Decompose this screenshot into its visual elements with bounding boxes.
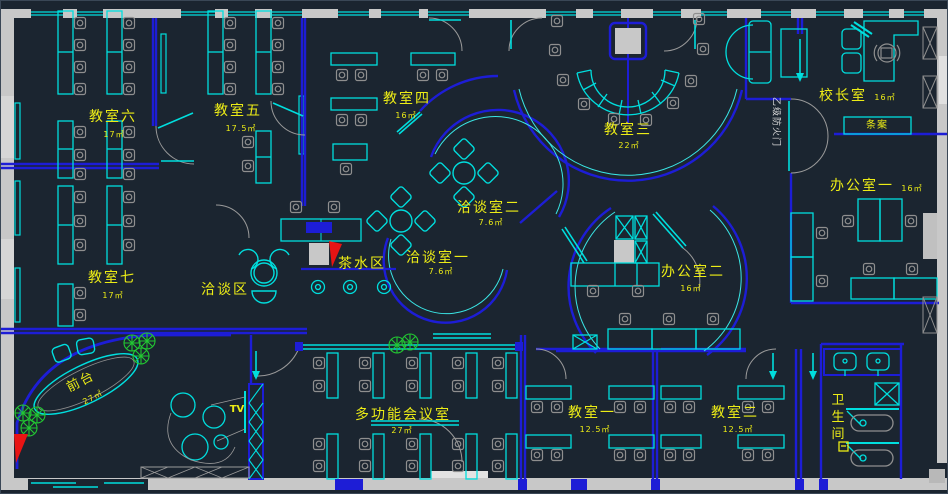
label-classroom2: 教室二 bbox=[711, 406, 759, 420]
label-multi-meeting: 多功能会议室 bbox=[355, 408, 451, 422]
label-meeting1: 洽谈室一 bbox=[406, 251, 470, 265]
floor-plan-drawing bbox=[1, 1, 948, 494]
office2-furniture bbox=[571, 216, 740, 349]
interior-walls-cyan bbox=[389, 89, 742, 351]
classroom1-furniture bbox=[526, 386, 654, 461]
label-meeting2: 洽谈室二 bbox=[457, 201, 521, 215]
label-office2: 办公室二 bbox=[661, 265, 725, 279]
exterior-walls bbox=[1, 9, 948, 490]
office1-furniture bbox=[791, 199, 937, 301]
right-wall-mullions bbox=[923, 27, 937, 333]
label-principal: 校长室 bbox=[819, 89, 867, 103]
label-toilet: 卫生间 bbox=[830, 393, 843, 444]
classroom2-furniture bbox=[661, 386, 784, 461]
label-tea-area: 茶水区 bbox=[338, 257, 386, 271]
label-tv: TV bbox=[230, 405, 245, 415]
classroom5-furniture bbox=[208, 11, 284, 183]
area-classroom2: 12.5㎡ bbox=[723, 426, 754, 434]
interior-walls bbox=[1, 18, 948, 479]
label-classroom5: 教室五 bbox=[214, 104, 262, 118]
classroom4-furniture bbox=[331, 53, 455, 175]
doors bbox=[156, 18, 828, 462]
label-classroom1: 教室一 bbox=[568, 406, 616, 420]
label-talk-area: 洽谈区 bbox=[201, 283, 249, 297]
label-classroom4: 教室四 bbox=[383, 92, 431, 106]
area-office2: 16㎡ bbox=[680, 285, 701, 293]
label-console-table: 条案 bbox=[866, 121, 888, 131]
label-fire-door: 乙级防火门 bbox=[771, 97, 780, 147]
label-office1: 办公室一 bbox=[830, 179, 894, 193]
area-meeting2: 7.6㎡ bbox=[479, 219, 504, 227]
area-classroom7: 17㎡ bbox=[102, 292, 123, 300]
label-classroom7: 教室七 bbox=[88, 271, 136, 285]
area-multi-meeting: 27㎡ bbox=[391, 427, 412, 435]
area-office1: 16㎡ bbox=[901, 185, 922, 193]
area-principal: 16㎡ bbox=[874, 94, 895, 102]
area-classroom6: 17㎡ bbox=[103, 131, 124, 139]
label-classroom6: 教室六 bbox=[89, 110, 137, 124]
area-classroom3: 22㎡ bbox=[618, 142, 639, 150]
label-classroom3: 教室三 bbox=[604, 123, 652, 137]
principal-furniture bbox=[726, 21, 918, 134]
tv-wall-lounge bbox=[168, 384, 263, 479]
area-classroom5: 17.5㎡ bbox=[226, 125, 257, 133]
area-classroom1: 12.5㎡ bbox=[580, 426, 611, 434]
area-meeting1: 7.6㎡ bbox=[429, 268, 454, 276]
tea-area-furniture bbox=[281, 202, 396, 294]
floor-plan-canvas: 教室六 17㎡ 教室五 17.5㎡ 教室四 16㎡ 教室三 22㎡ 校长室 16… bbox=[0, 0, 948, 494]
classroom7-furniture bbox=[58, 186, 135, 326]
area-classroom4: 16㎡ bbox=[395, 112, 416, 120]
classroom6-furniture bbox=[58, 11, 135, 180]
